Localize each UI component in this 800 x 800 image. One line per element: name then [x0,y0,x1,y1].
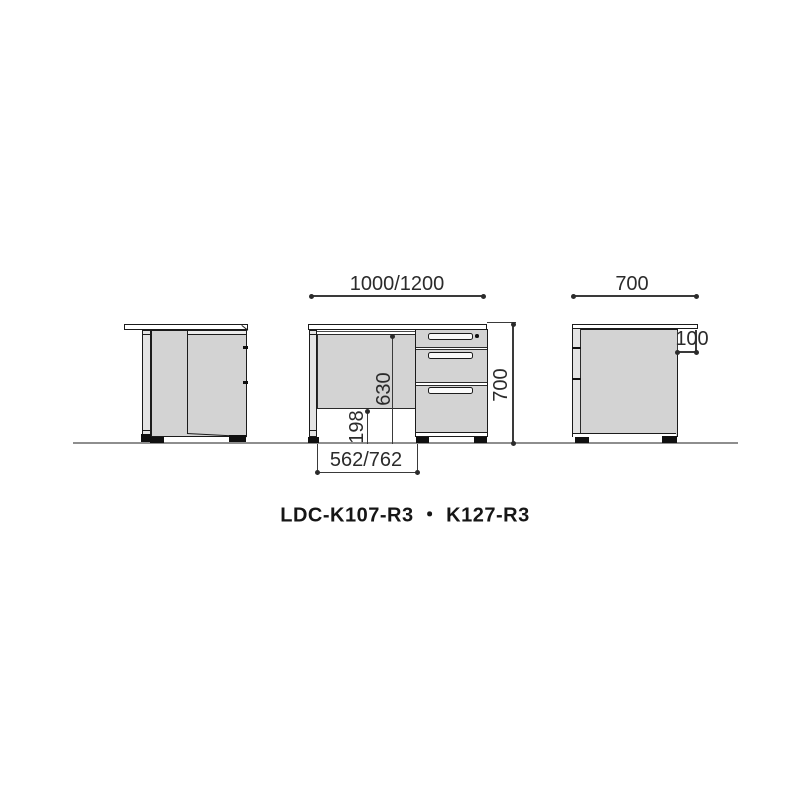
right-view-front-strip [572,329,581,437]
left-view-leg-tick-bottom [142,430,151,431]
knee-width-dim-dot-left [315,470,320,475]
front-view-leg-foot [308,437,320,443]
left-view-leg-panel [142,330,151,437]
knee-width-dim-line [317,472,417,473]
drawer-1-handle [428,333,473,340]
front-view-leg-tick-top [309,334,318,335]
front-view-drawer-pedestal [415,329,488,437]
left-view-foot-left [150,437,164,443]
right-view-strip-tick-2 [572,378,581,381]
left-view-top-rail [188,331,246,336]
height-dim-dot-top [511,322,516,327]
front-view-modesty-panel [317,334,416,410]
front-view-top-rail [317,331,415,332]
overhang-dim-dot-right [694,350,699,355]
depth-dim-label: 700 [615,274,648,294]
left-view-body-divider [187,330,189,434]
front-view-leg-panel [309,330,318,437]
right-view-foot-left [575,437,589,443]
height-dim-line [512,323,513,445]
drawer-2-handle [428,352,473,359]
front-width-dim-label: 1000/1200 [350,274,445,294]
drawer-3-handle [428,387,473,394]
panel-clearance-dim-label: 198 [347,410,367,443]
right-view-foot-right [662,436,677,443]
right-view-strip-tick-1 [572,347,581,350]
knee-width-dim-label: 562/762 [330,450,402,470]
right-view-body [572,329,678,437]
knee-width-dim-dot-right [415,470,420,475]
front-width-dim-dot-left [309,294,314,299]
left-view-edge-tick-1 [243,346,248,349]
pedestal-foot-right [474,437,488,443]
pedestal-foot-left [416,437,429,443]
left-view-leg-tick-top [142,334,151,335]
depth-dim-dot-right [694,294,699,299]
ground-line [73,442,738,444]
lock-icon [475,334,479,338]
drawer-gap-2 [416,382,487,387]
front-view-leg-tick-bottom [309,430,318,431]
overhang-dim-dot-left [675,350,680,355]
front-width-dim-dot-right [481,294,486,299]
product-model-label: LDC-K107-R3 ・ K127-R3 [280,499,529,528]
depth-dim-line [573,295,696,296]
overhang-dim-label: 100 [675,329,708,349]
depth-dim-dot-left [571,294,576,299]
left-view-edge-tick-2 [243,381,248,384]
left-view-foot-right [229,435,246,443]
technical-drawing-canvas: 1000/1200 630 198 700 562/762 700 [0,0,800,800]
left-view-body [151,330,247,437]
height-dim-label: 700 [491,368,511,401]
front-width-dim-line [311,295,483,296]
drawer-gap-1 [416,347,487,351]
pedestal-base-recess [416,432,487,436]
height-dim-dot-bottom [511,441,516,446]
knee-height-dim-label: 630 [374,372,394,405]
